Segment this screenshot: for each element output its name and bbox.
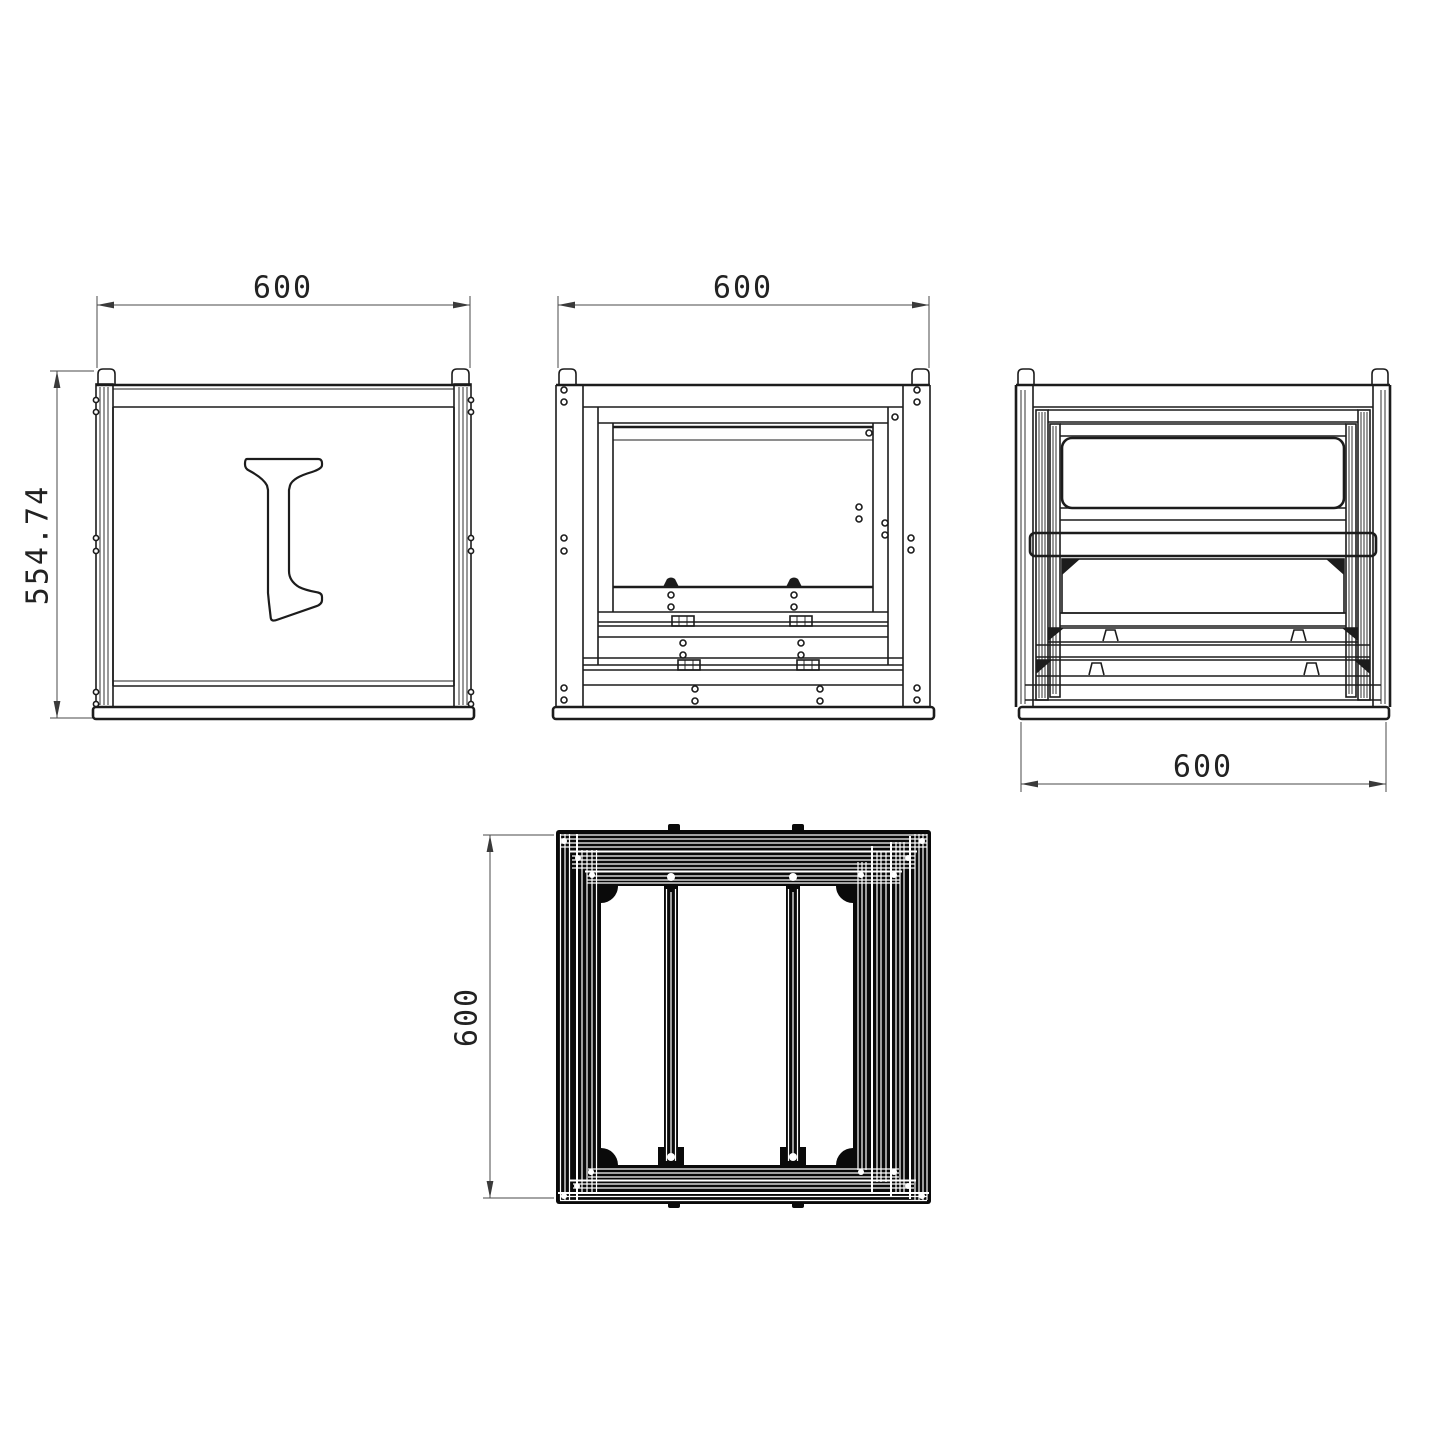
drawing-canvas: 600 554.74 600 600 600 [0,0,1445,1445]
shelf-tab [1103,630,1118,641]
front-width-dim-label: 600 [713,271,773,306]
logo-letter-i [245,459,322,621]
side-view [50,296,474,719]
side-width-dimension [97,296,470,368]
back-view [1016,369,1390,792]
foot-rail [553,707,934,719]
panel-tab [663,578,679,588]
middle-shelf-edge [1030,533,1376,556]
top-depth-dimension [483,835,554,1198]
upper-shelf-panel [1062,438,1344,508]
clip-brackets [672,616,819,670]
front-view [553,296,934,719]
side-width-dim-label: 600 [253,271,313,306]
shelf-tab [1304,663,1319,675]
corner-tab [1372,369,1388,385]
back-width-dim-label: 600 [1173,750,1233,785]
corner-tab [452,369,469,385]
shelf-tab [1089,663,1104,675]
corner-tab [559,369,576,385]
top-depth-dim-label: 600 [450,987,485,1047]
screw-holes [561,387,920,704]
side-height-dim-label: 554.74 [21,485,56,605]
shelf-tab [1291,630,1306,641]
foot-rail [1019,707,1389,719]
cad-drawing [0,0,1445,1445]
corner-tab [1018,369,1034,385]
side-height-dimension [50,371,94,718]
top-view [483,824,931,1208]
panel-tab [786,578,802,588]
corner-tab [98,369,115,385]
foot-rail [93,707,474,719]
corner-tab [912,369,929,385]
lower-shelf-panel [1062,559,1344,613]
front-width-dimension [558,296,929,368]
